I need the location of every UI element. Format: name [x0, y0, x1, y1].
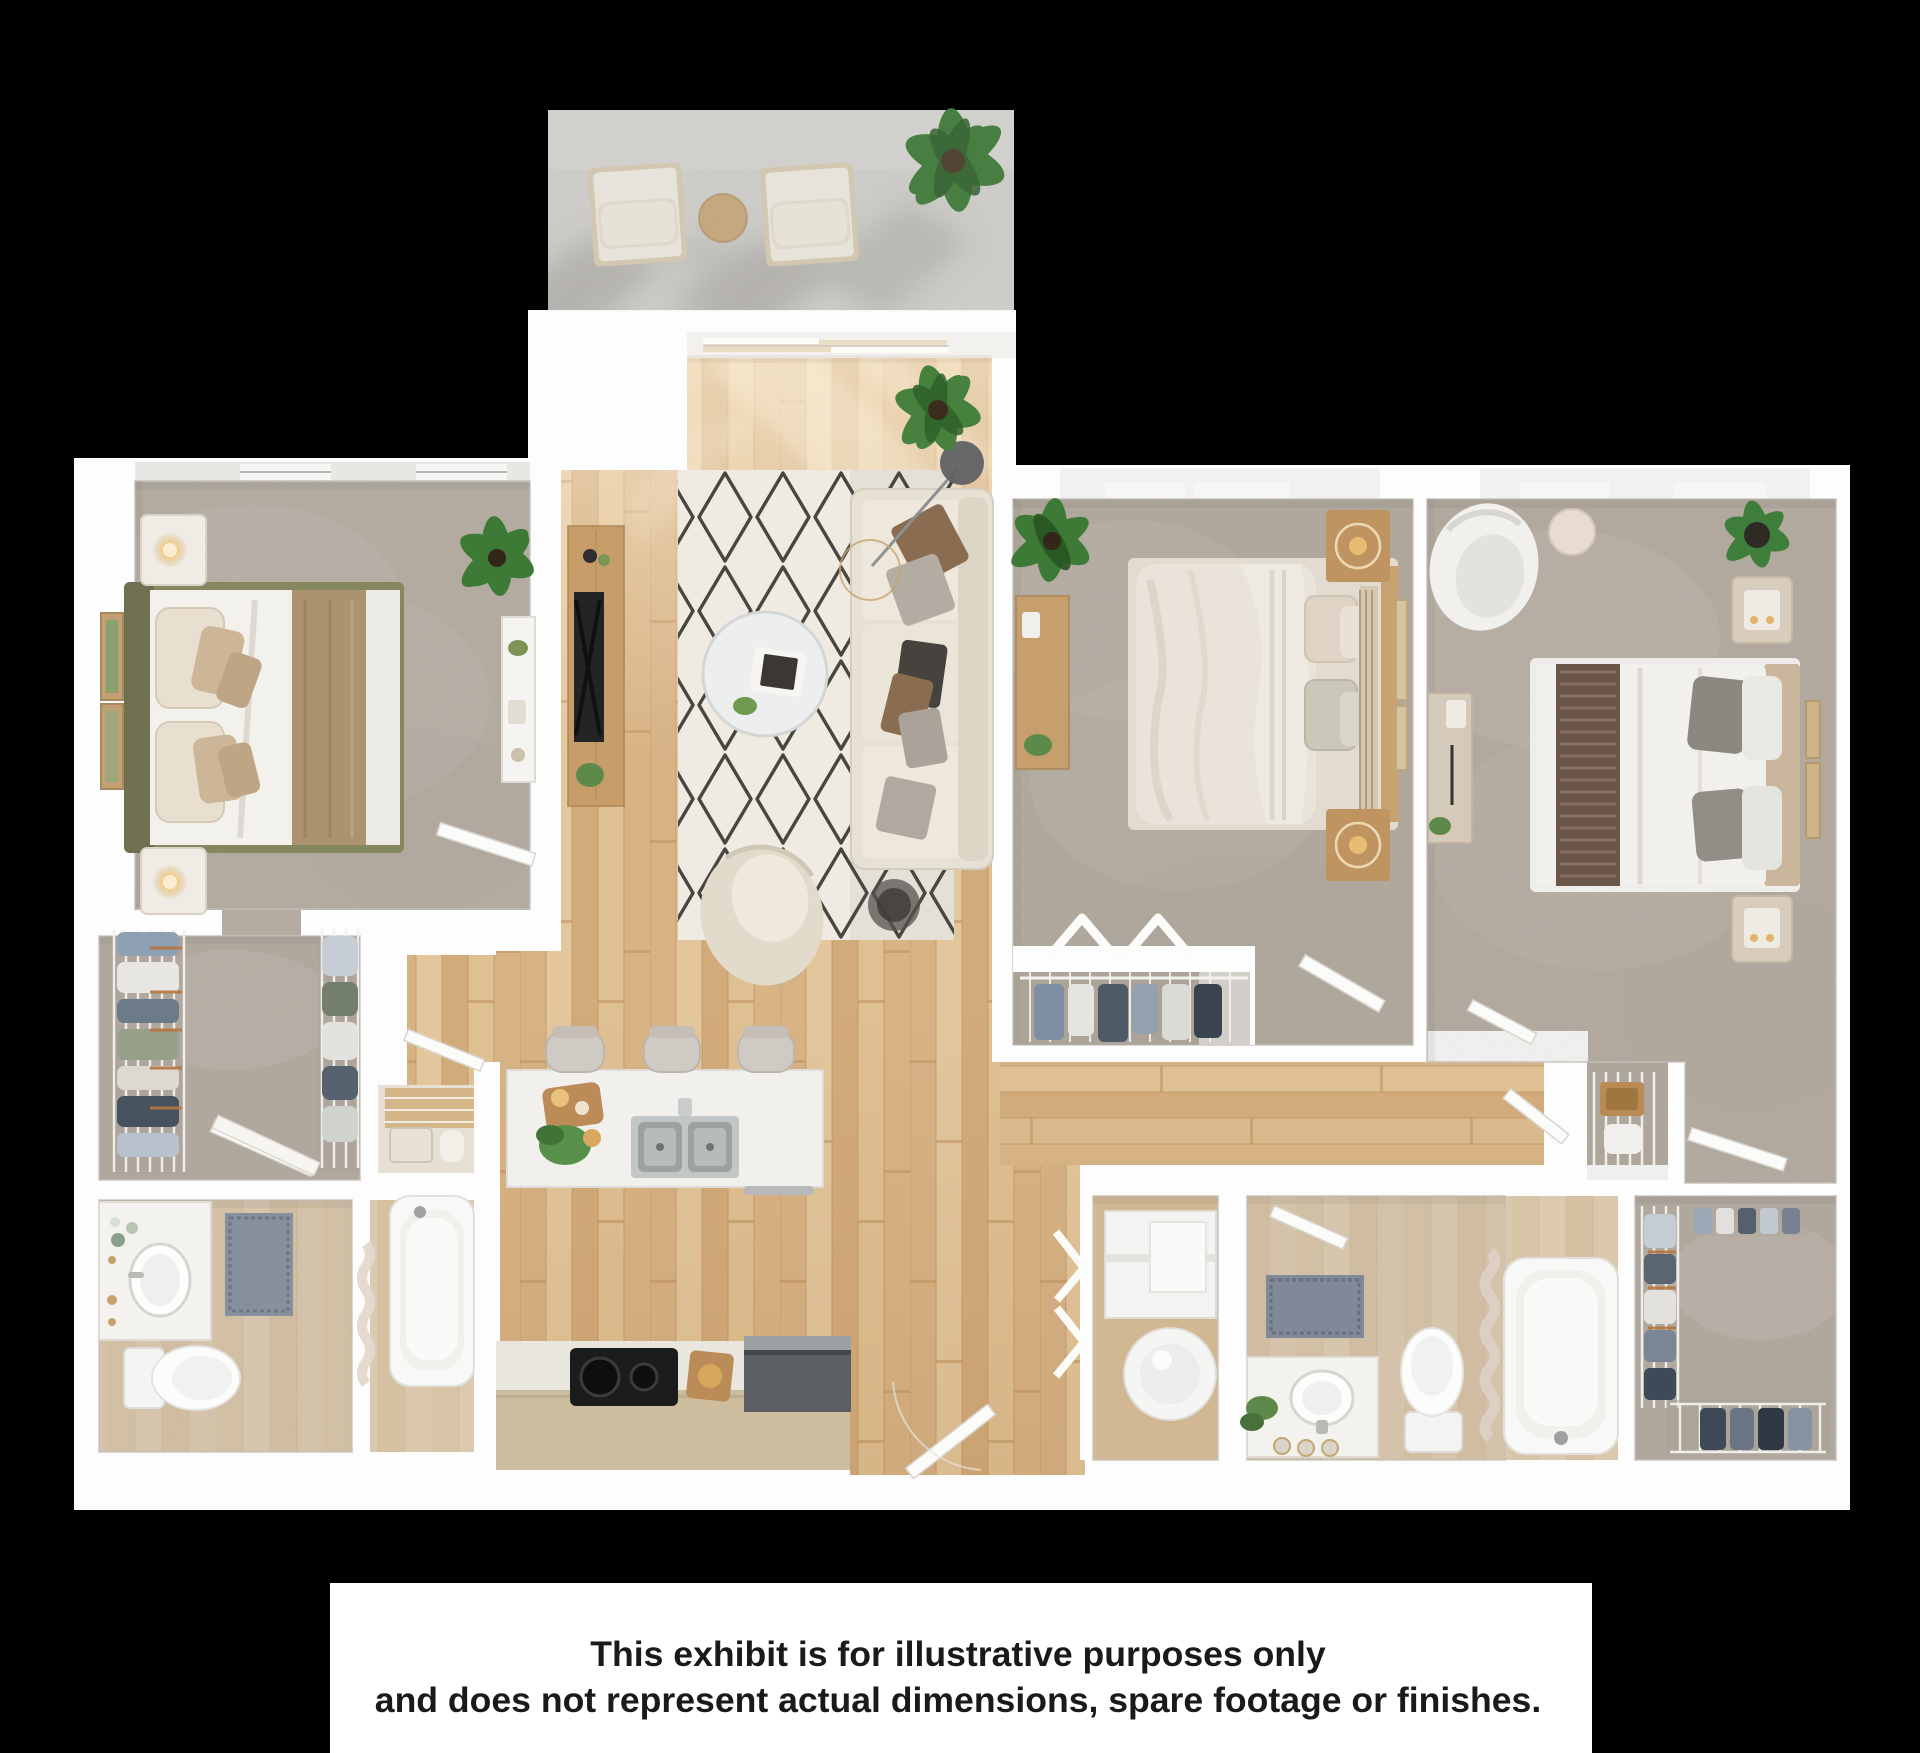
svg-text:This exhibit is for illustrati: This exhibit is for illustrative purpose… — [590, 1634, 1326, 1674]
svg-text:and does not represent actual: and does not represent actual dimensions… — [375, 1680, 1541, 1720]
